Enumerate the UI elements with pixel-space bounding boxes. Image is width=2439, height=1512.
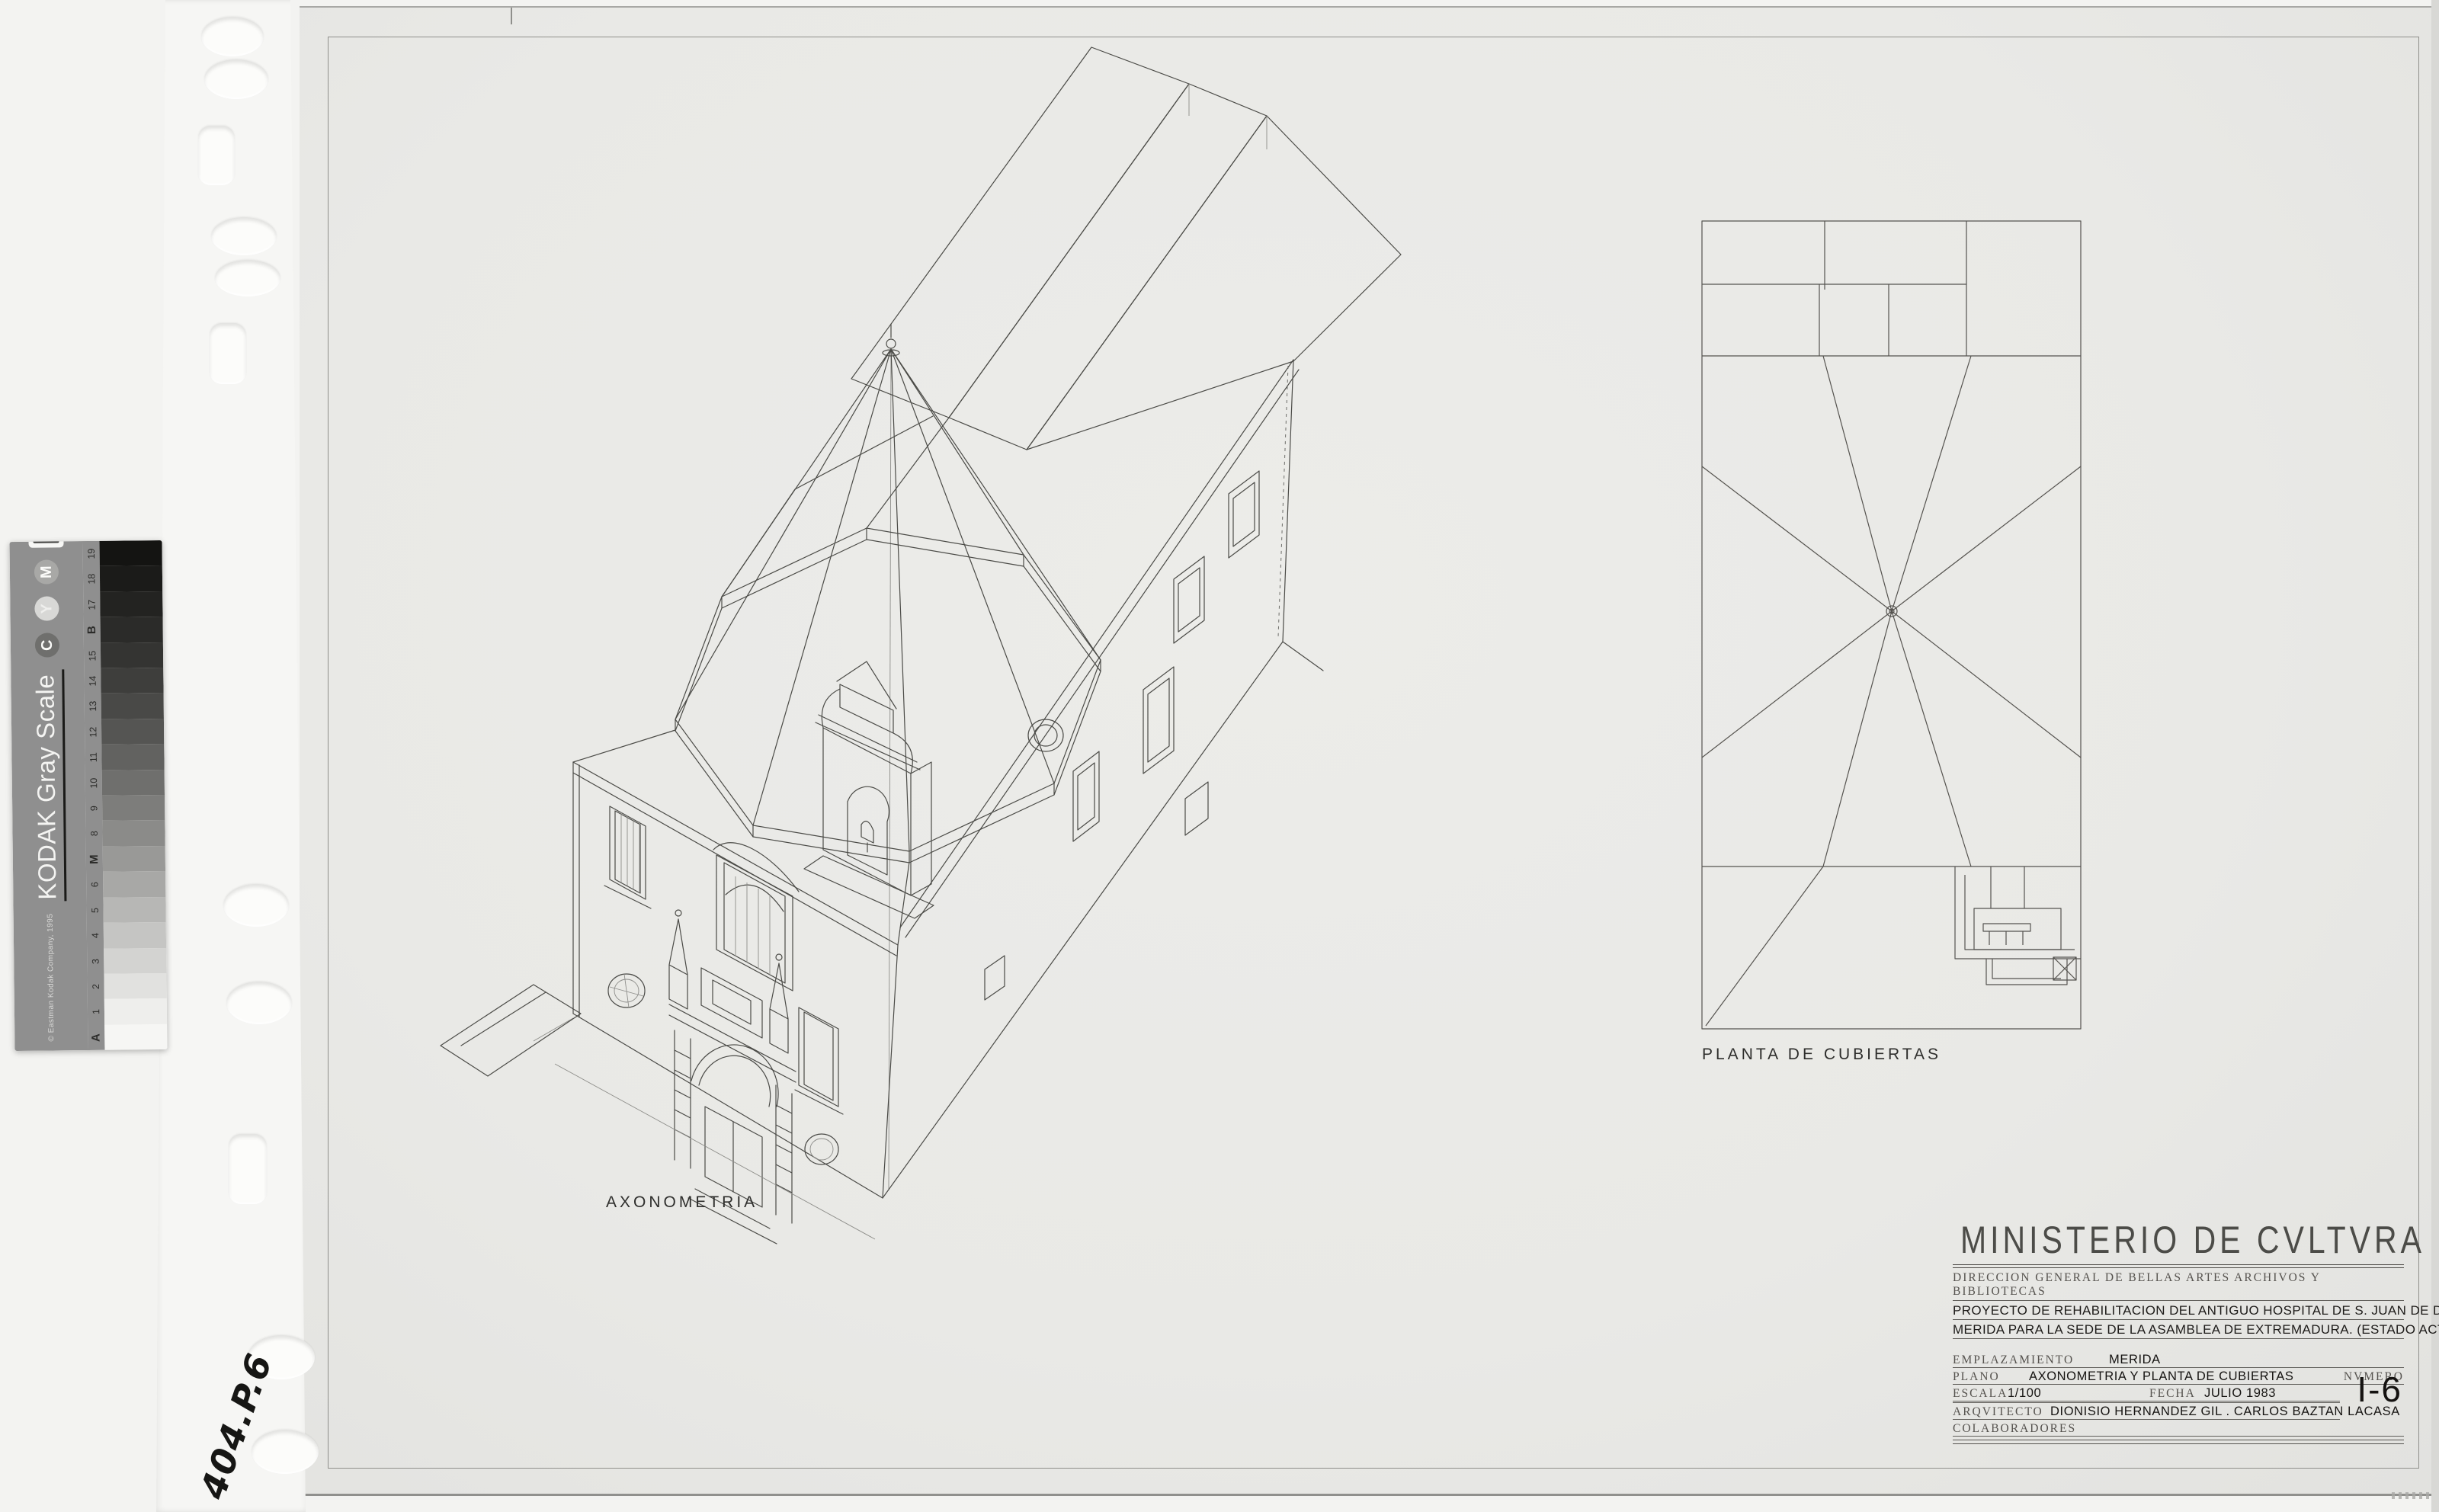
binder-hole — [226, 982, 292, 1024]
field-colaboradores: COLABORADORES — [1953, 1420, 2404, 1437]
binder-slot — [198, 126, 235, 185]
facade-window — [610, 806, 646, 899]
gray-scale-step-label: 18 — [79, 571, 104, 588]
fecha-label: FECHA — [2149, 1387, 2196, 1401]
arquitecto-value: DIONISIO HERNANDEZ GIL . CARLOS BAZTAN L… — [2050, 1405, 2400, 1419]
gray-scale-step-label: 10 — [81, 774, 107, 791]
nave-cornice — [900, 360, 1299, 937]
kodak-logo-icon: Kodak — [28, 540, 63, 548]
wall-window — [1229, 471, 1259, 558]
gray-scale-step-label: 17 — [79, 596, 105, 613]
binder-hole — [252, 1430, 319, 1474]
gray-patch — [101, 668, 163, 694]
gray-patch — [102, 820, 165, 846]
emplazamiento-value: MERIDA — [2109, 1353, 2161, 1367]
bell-icon — [861, 822, 873, 853]
gray-scale-step-label: B — [79, 622, 105, 639]
scanned-drawing-page: © Eastman Kodak Company, 1995 KODAK Gray… — [0, 0, 2439, 1512]
roof-plan-drawing — [1677, 198, 2104, 1052]
ministry-row: MINISTERIO DE CVLTVRA — [1953, 1210, 2404, 1262]
portal-pinnacle — [675, 910, 681, 916]
lean-to — [441, 985, 581, 1076]
gray-scale-step-label: 3 — [82, 953, 108, 969]
arquitecto-label: ARQVITECTO — [1953, 1405, 2043, 1419]
binder-slot — [229, 1134, 267, 1204]
hip-roof-facets — [1702, 356, 2081, 867]
kodak-copyright: © Eastman Kodak Company, 1995 — [46, 914, 56, 1042]
choir-window-pediment — [713, 843, 799, 892]
field-emplazamiento: EMPLAZAMIENTO MERIDA — [1953, 1351, 2404, 1368]
axonometria-caption: AXONOMETRIA — [606, 1193, 758, 1212]
registration-tick — [511, 8, 512, 24]
stair-x-box — [2053, 957, 2076, 980]
registration-circle-m: M — [34, 560, 59, 585]
gray-patch — [103, 871, 165, 897]
gray-patches — [100, 540, 168, 1050]
registration-circle-c: C — [35, 633, 59, 658]
kodak-title: KODAK Gray Scale — [30, 669, 66, 901]
fecha-value: JULIO 1983 — [2204, 1386, 2276, 1401]
gray-scale-step-label: 4 — [82, 927, 108, 944]
roof-plan-caption: PLANTA DE CUBIERTAS — [1702, 1046, 1941, 1064]
kodak-gray-scale-strip: © Eastman Kodak Company, 1995 KODAK Gray… — [10, 540, 168, 1051]
gray-patch — [104, 947, 166, 973]
gray-scale-label-band: © Eastman Kodak Company, 1995 KODAK Gray… — [10, 541, 88, 1051]
gray-scale-step-label: 6 — [82, 876, 107, 893]
gray-patch — [103, 897, 165, 923]
binder-hole — [204, 59, 268, 99]
gray-patch — [102, 770, 165, 796]
escala-label: ESCALA — [1953, 1387, 2008, 1401]
gray-scale-step-label: 13 — [80, 698, 106, 715]
ministry-name: MINISTERIO DE CVLTVRA — [1960, 1219, 2425, 1262]
gray-scale-step-label: 1 — [83, 1004, 109, 1020]
colaboradores-label: COLABORADORES — [1953, 1422, 2076, 1436]
gray-scale-step-label: 12 — [80, 723, 106, 740]
gray-patch — [100, 565, 162, 591]
binder-hole — [211, 217, 277, 255]
plano-value: AXONOMETRIA Y PLANTA DE CUBIERTAS — [2029, 1369, 2293, 1384]
gray-scale-step-label: 14 — [80, 672, 106, 689]
escala-value: 1/100 — [2008, 1386, 2041, 1401]
field-arquitecto: ARQVITECTO DIONISIO HERNANDEZ GIL . CARL… — [1953, 1403, 2340, 1420]
title-block: MINISTERIO DE CVLTVRA DIRECCION GENERAL … — [1953, 1210, 2404, 1444]
gray-patch — [104, 1024, 167, 1050]
binder-hole — [201, 17, 264, 56]
gray-patch — [104, 998, 167, 1024]
gray-scale-step-label: 5 — [82, 902, 108, 918]
gray-patch — [100, 540, 162, 566]
film-edge-shade — [2431, 0, 2439, 1512]
binder-hole — [215, 260, 280, 296]
binder-slot — [210, 323, 246, 384]
gray-patch — [102, 795, 165, 821]
gray-patch — [104, 973, 166, 999]
gray-scale-step-label: 19 — [79, 545, 104, 562]
gray-scale-step-label: 11 — [81, 749, 107, 766]
emplazamiento-label: EMPLAZAMIENTO — [1953, 1353, 2074, 1367]
project-title-line1: PROYECTO DE REHABILITACION DEL ANTIGUO H… — [1953, 1301, 2404, 1320]
axonometric-drawing — [412, 46, 1555, 1280]
sheet-number: I-6 — [2357, 1369, 2402, 1410]
gray-patch — [101, 744, 164, 770]
gray-patch — [100, 591, 162, 617]
annex-roof-plane — [851, 47, 1189, 418]
gray-scale-step-label: 8 — [82, 825, 107, 842]
gray-scale-step-label: A — [84, 1029, 110, 1046]
gray-patch — [104, 922, 166, 948]
registration-circle-y: Y — [34, 597, 59, 621]
film-edge-mark — [2392, 1492, 2431, 1499]
gray-patch — [103, 846, 165, 872]
gray-scale-step-label: M — [82, 850, 107, 867]
gray-scale-step-label: 9 — [81, 800, 107, 817]
gray-patch — [101, 617, 163, 642]
department-name: DIRECCION GENERAL DE BELLAS ARTES ARCHIV… — [1953, 1268, 2404, 1301]
gray-patch — [101, 719, 164, 745]
field-escala: ESCALA 1/100 FECHA JULIO 1983 — [1953, 1385, 2340, 1403]
bell-gable — [804, 856, 934, 918]
plano-label: PLANO — [1953, 1370, 2000, 1384]
gray-scale-step-label: 2 — [83, 978, 109, 995]
field-plano: PLANO AXONOMETRIA Y PLANTA DE CUBIERTAS … — [1953, 1368, 2404, 1385]
gray-patch — [101, 642, 163, 668]
binder-hole — [223, 884, 289, 927]
project-title-line2: MERIDA PARA LA SEDE DE LA ASAMBLEA DE EX… — [1953, 1320, 2404, 1339]
gray-patch — [101, 693, 164, 719]
gray-scale-step-label: 15 — [79, 647, 105, 664]
